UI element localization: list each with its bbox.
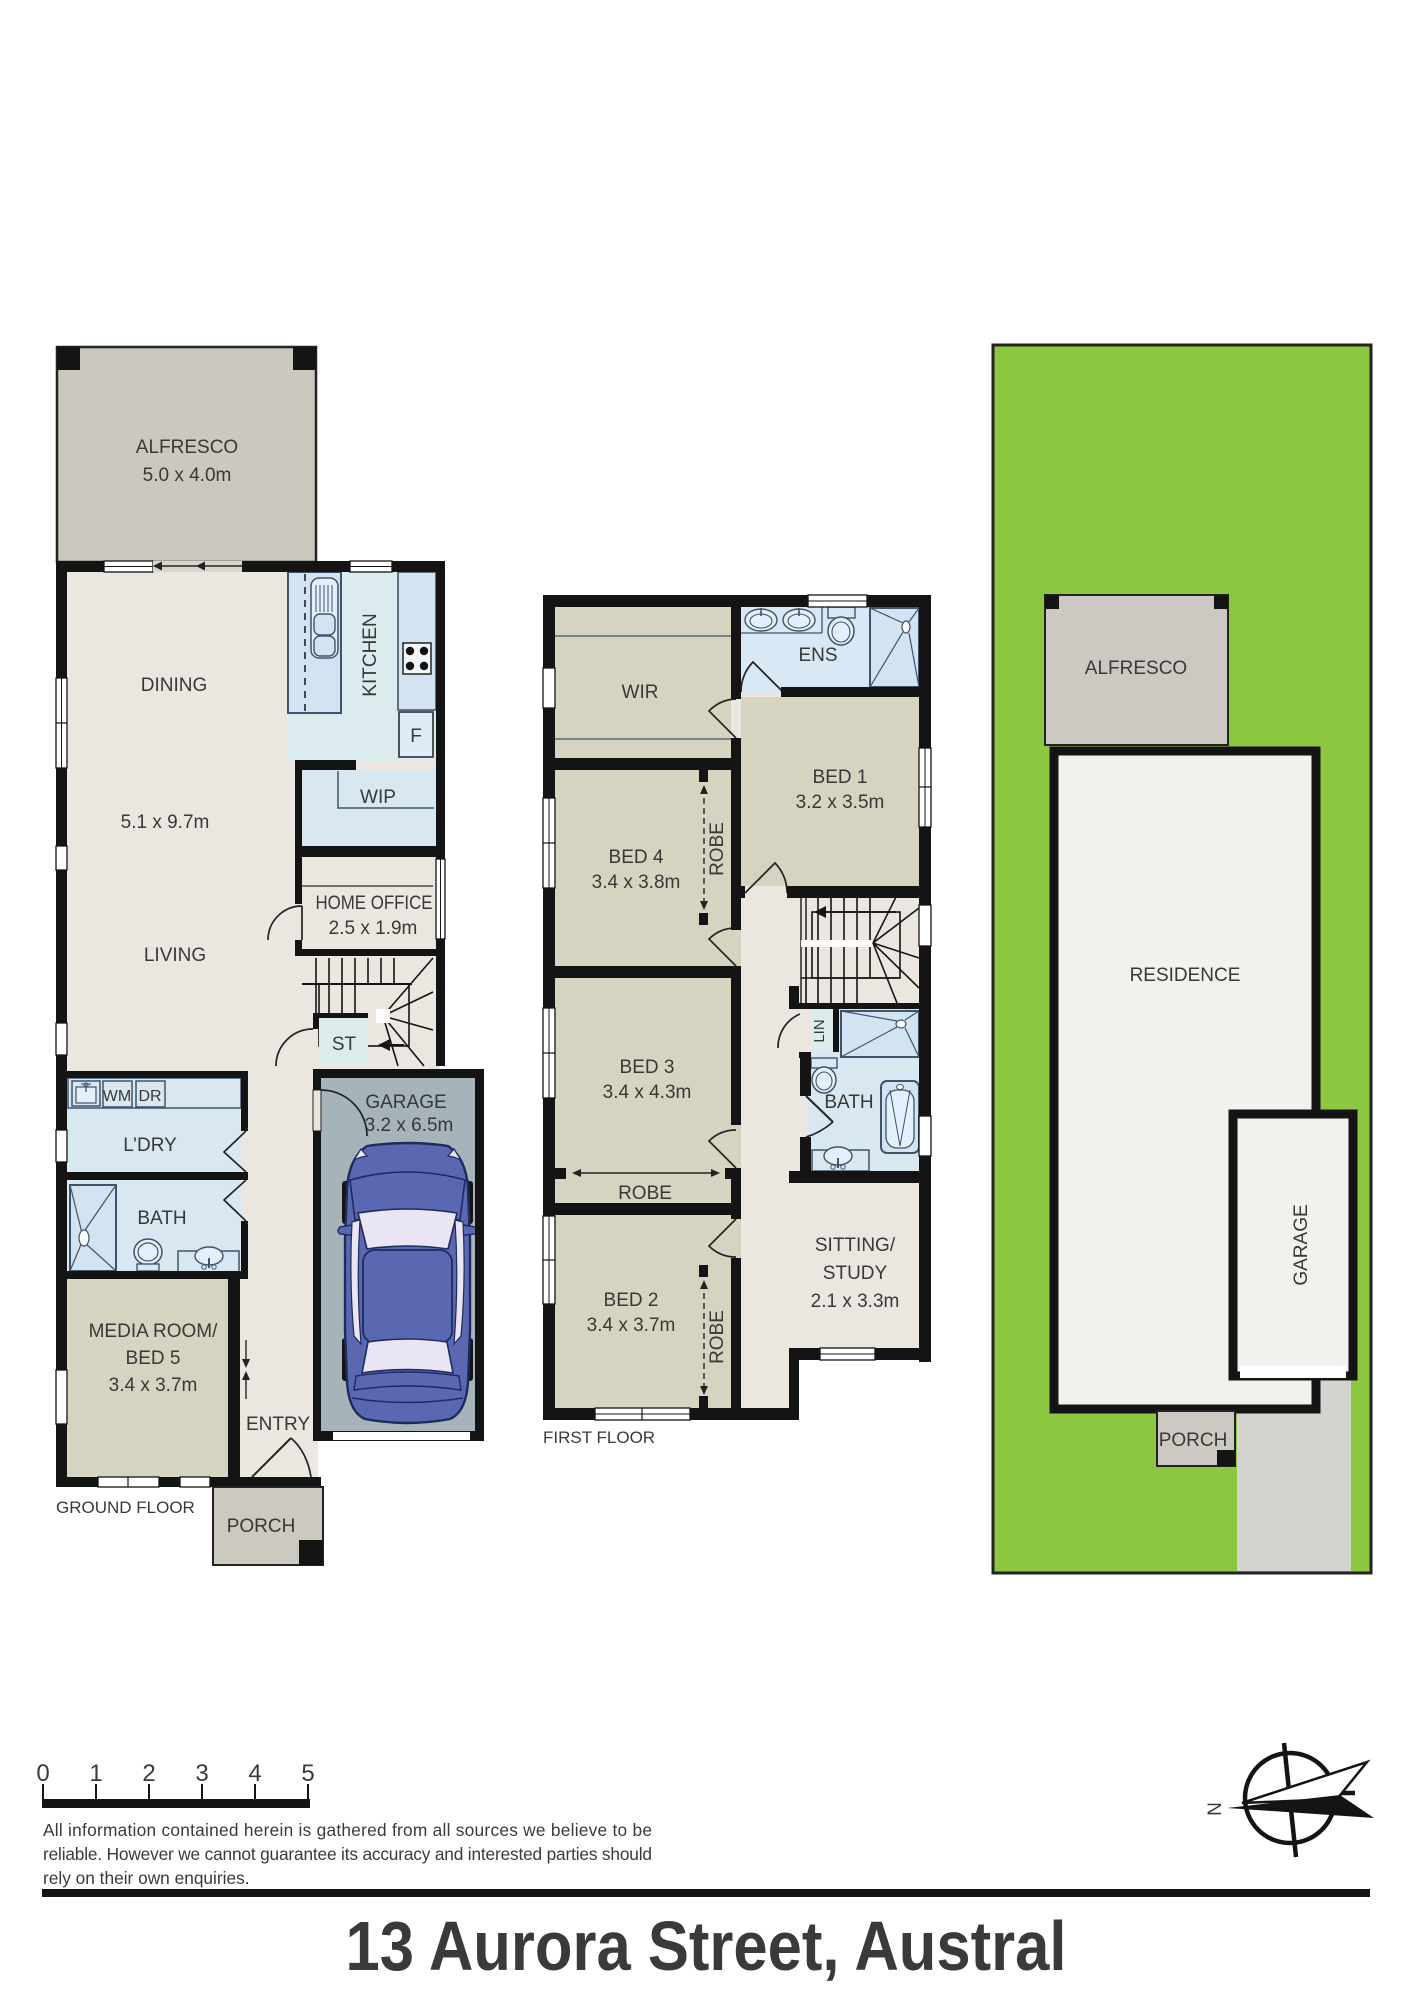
svg-text:2.1 x 3.3m: 2.1 x 3.3m [811, 1291, 900, 1312]
svg-text:ALFRESCO: ALFRESCO [1085, 658, 1187, 679]
svg-text:GROUND FLOOR: GROUND FLOOR [56, 1498, 195, 1517]
svg-text:All information contained here: All information contained herein is gath… [43, 1820, 652, 1840]
svg-text:RESIDENCE: RESIDENCE [1130, 965, 1241, 986]
svg-text:ROBE: ROBE [618, 1183, 672, 1204]
svg-text:2: 2 [142, 1760, 155, 1787]
svg-text:2.5 x 1.9m: 2.5 x 1.9m [329, 918, 418, 939]
svg-text:GARAGE: GARAGE [365, 1092, 446, 1113]
svg-text:13 Aurora Street, Austral: 13 Aurora Street, Austral [346, 1907, 1067, 1985]
svg-text:5: 5 [301, 1760, 314, 1787]
svg-text:L’DRY: L’DRY [123, 1135, 177, 1156]
svg-text:GARAGE: GARAGE [1291, 1204, 1312, 1285]
svg-text:3.4 x 3.7m: 3.4 x 3.7m [109, 1375, 198, 1396]
svg-text:BED 5: BED 5 [126, 1348, 181, 1369]
svg-text:DR: DR [138, 1088, 161, 1105]
svg-text:SITTING/: SITTING/ [815, 1235, 896, 1256]
svg-text:LIN: LIN [811, 1019, 828, 1042]
svg-text:ST: ST [332, 1034, 357, 1055]
svg-text:3: 3 [195, 1760, 208, 1787]
svg-text:ALFRESCO: ALFRESCO [136, 437, 238, 458]
svg-text:LIVING: LIVING [144, 945, 206, 966]
svg-text:3.4 x 3.8m: 3.4 x 3.8m [592, 872, 681, 893]
svg-text:BATH: BATH [824, 1092, 873, 1113]
svg-text:3.4 x 3.7m: 3.4 x 3.7m [587, 1315, 676, 1336]
svg-text:BED 2: BED 2 [604, 1290, 659, 1311]
svg-text:FIRST FLOOR: FIRST FLOOR [543, 1428, 655, 1447]
svg-text:KITCHEN: KITCHEN [360, 613, 381, 696]
svg-text:3.2 x 6.5m: 3.2 x 6.5m [365, 1115, 454, 1136]
svg-text:F: F [410, 726, 422, 747]
svg-text:BATH: BATH [137, 1208, 186, 1229]
svg-text:BED 1: BED 1 [813, 767, 868, 788]
svg-text:rely on their own enquiries.: rely on their own enquiries. [43, 1868, 250, 1888]
svg-text:3.4 x 4.3m: 3.4 x 4.3m [603, 1082, 692, 1103]
svg-text:PORCH: PORCH [227, 1516, 296, 1537]
svg-text:ENTRY: ENTRY [246, 1414, 310, 1435]
svg-text:BED 4: BED 4 [609, 847, 664, 868]
svg-text:0: 0 [36, 1760, 49, 1787]
svg-text:WIR: WIR [622, 682, 659, 703]
svg-text:4: 4 [248, 1760, 261, 1787]
svg-text:WM: WM [103, 1088, 131, 1105]
svg-text:1: 1 [89, 1760, 102, 1787]
svg-text:ROBE: ROBE [707, 1310, 728, 1364]
svg-text:BED 3: BED 3 [620, 1057, 675, 1078]
svg-text:MEDIA ROOM/: MEDIA ROOM/ [89, 1321, 219, 1342]
svg-text:HOME OFFICE: HOME OFFICE [316, 893, 433, 914]
svg-text:ROBE: ROBE [707, 822, 728, 876]
svg-text:reliable. However we cannot gu: reliable. However we cannot guarantee it… [43, 1844, 652, 1864]
svg-text:DINING: DINING [141, 675, 208, 696]
svg-text:PORCH: PORCH [1159, 1430, 1228, 1451]
svg-text:N: N [1205, 1802, 1226, 1816]
svg-text:5.1 x 9.7m: 5.1 x 9.7m [121, 812, 210, 833]
svg-text:5.0 x 4.0m: 5.0 x 4.0m [143, 465, 232, 486]
svg-text:WIP: WIP [360, 787, 396, 808]
svg-text:3.2 x 3.5m: 3.2 x 3.5m [796, 792, 885, 813]
svg-text:STUDY: STUDY [823, 1263, 888, 1284]
svg-text:ENS: ENS [798, 645, 837, 666]
